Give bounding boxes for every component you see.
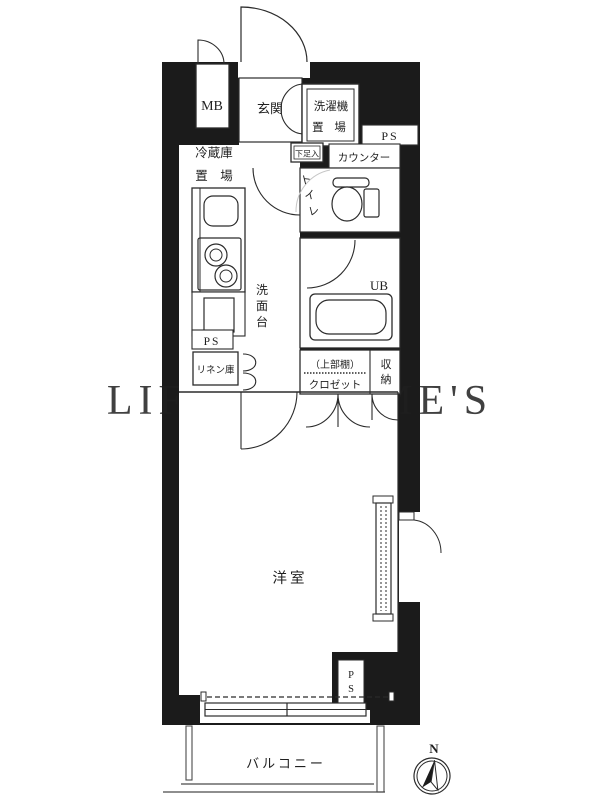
unit-bath: UB [300, 238, 400, 348]
floor-plan-page: LIFULL HOME'S [0, 0, 600, 800]
compass-north-label: N [429, 741, 439, 756]
ps-left-label: PS [204, 336, 221, 348]
mb-label: MB [201, 99, 223, 114]
closet-label: クロゼット [309, 379, 362, 391]
washer-label-1: 洗濯機 [314, 99, 349, 113]
svg-text:S: S [348, 684, 354, 695]
genkan-label: 玄関 [257, 101, 283, 116]
counter: カウンター [329, 144, 400, 168]
fridge-label-1: 冷蔵庫 [195, 146, 233, 160]
svg-text:収: 収 [381, 358, 392, 371]
washer-label-2: 置 場 [312, 121, 350, 134]
ps-top-label: PS [381, 129, 398, 143]
shoe-box: 下足入 [291, 143, 323, 162]
kitchen [192, 188, 245, 292]
fridge-label-2: 置 場 [195, 169, 233, 183]
ub-label: UB [370, 278, 388, 293]
svg-text:面: 面 [256, 299, 268, 313]
linen-label: リネン庫 [196, 364, 235, 376]
pipe-space-top: PS [362, 125, 418, 145]
svg-text:納: 納 [381, 373, 392, 386]
svg-text:洗: 洗 [256, 283, 268, 297]
counter-label: カウンター [338, 152, 391, 164]
floor-plan: LIFULL HOME'S [0, 0, 600, 800]
entrance-door-arc [241, 7, 307, 62]
room-label: 洋室 [273, 570, 308, 587]
shoe-box-label: 下足入 [295, 150, 319, 159]
upper-shelf-label: （上部棚） [310, 358, 360, 371]
washing-machine-area: 洗濯機 置 場 [302, 84, 359, 146]
toilet-room: ト イ レ [296, 168, 400, 232]
meter-box: MB [196, 40, 229, 128]
pipe-space-left: PS [192, 330, 233, 349]
compass: N [411, 741, 452, 797]
svg-text:P: P [348, 670, 354, 681]
pipe-space-bottom: P S [332, 652, 420, 710]
balcony: バルコニー [163, 726, 385, 792]
svg-text:台: 台 [256, 314, 268, 329]
mb-door-arc [198, 40, 224, 64]
balcony-label: バルコニー [246, 756, 326, 771]
